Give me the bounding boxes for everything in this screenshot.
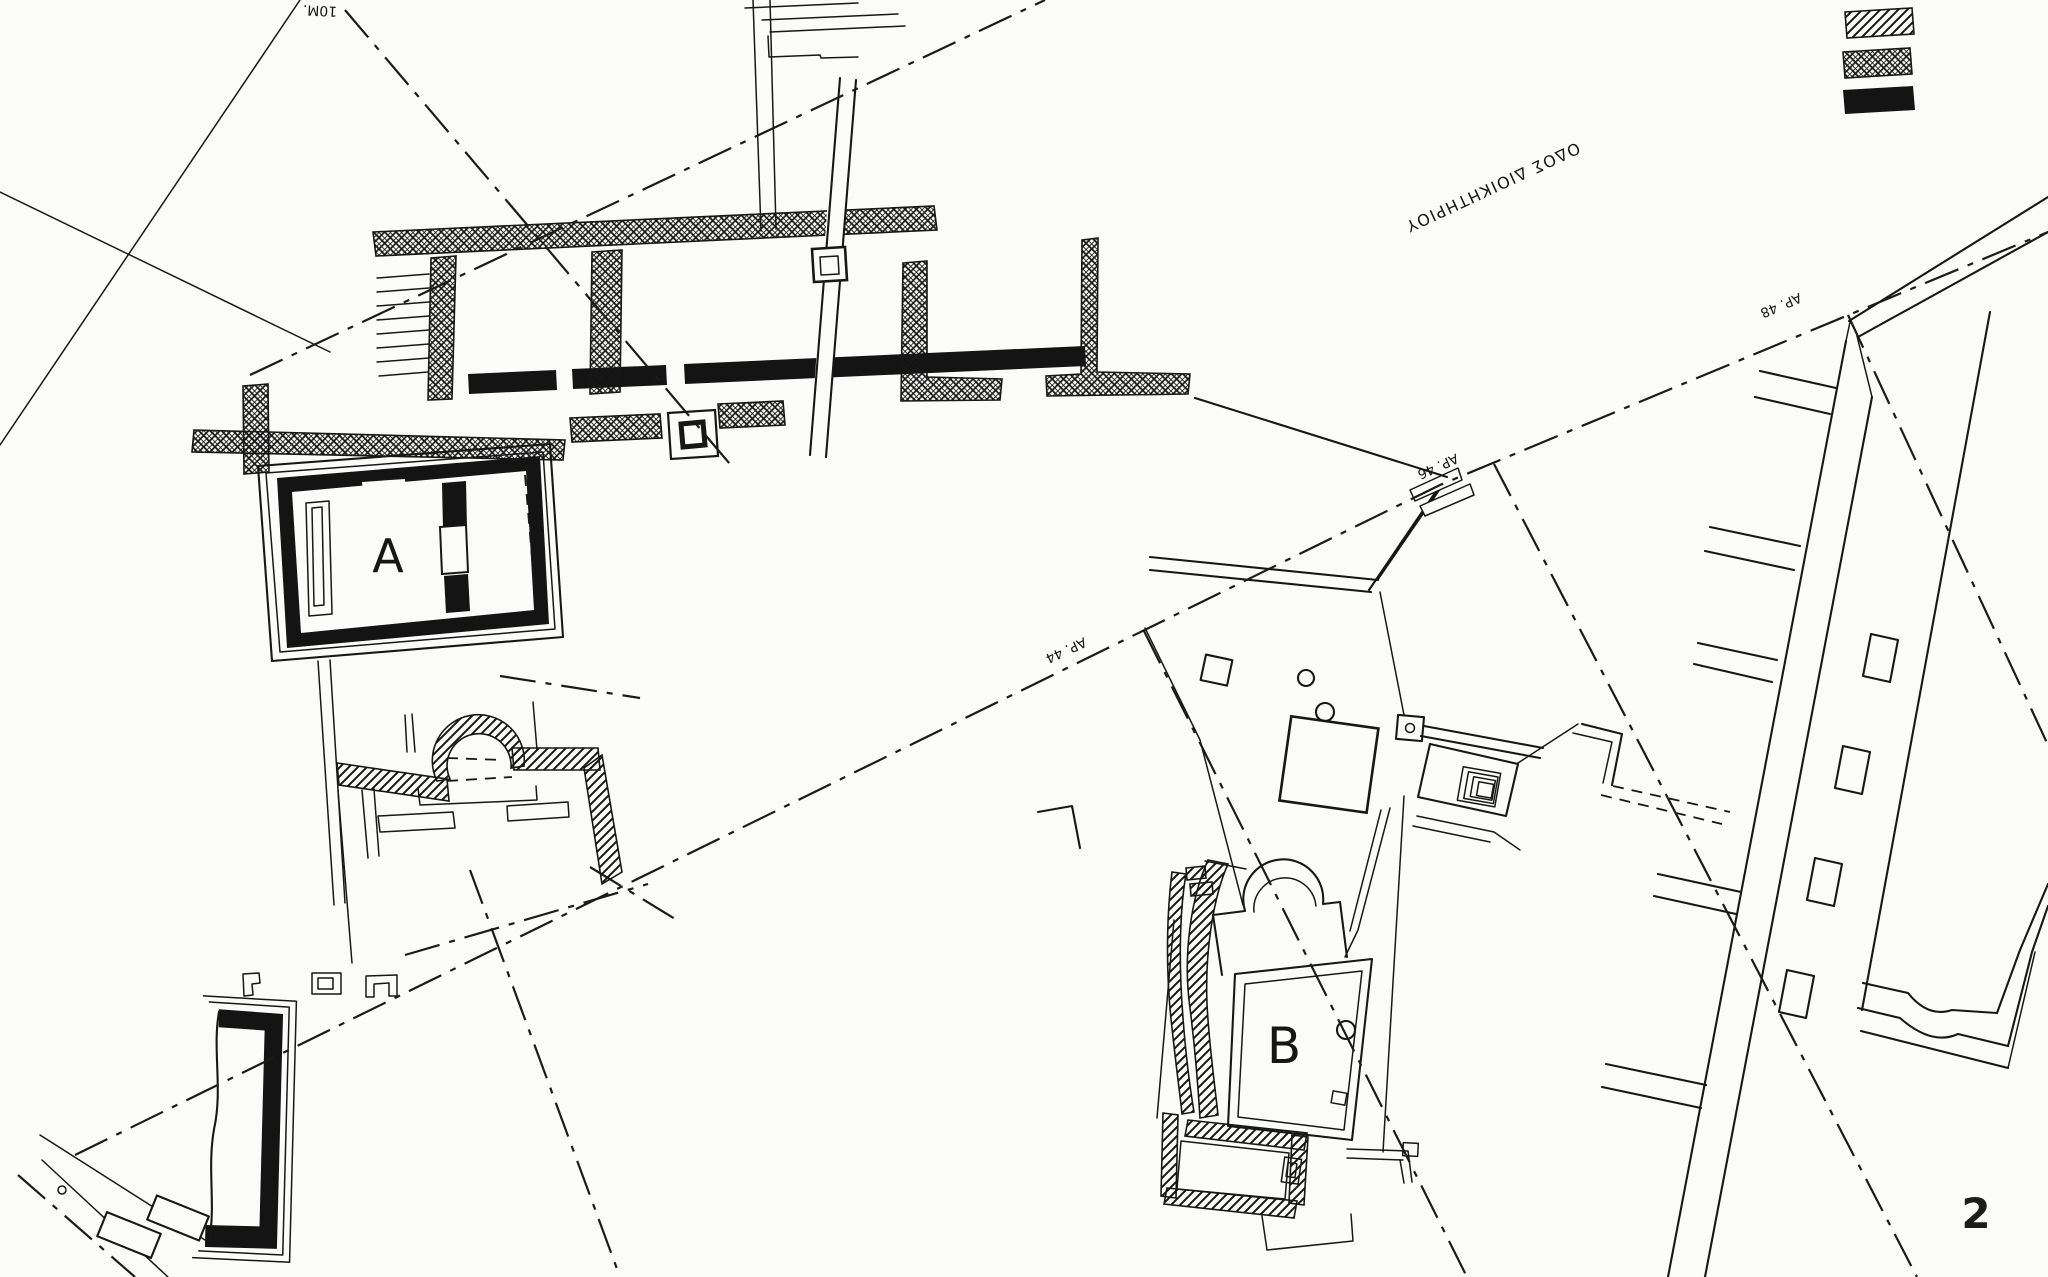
wall-stub xyxy=(718,401,785,428)
room-divider-wall xyxy=(590,250,622,394)
hatched-step xyxy=(1186,866,1206,880)
partition-wall xyxy=(444,574,470,613)
legend-solid-black-swatch xyxy=(1843,86,1915,114)
channel-box xyxy=(812,247,847,282)
doorway-block xyxy=(440,525,468,574)
figure-number: 2 xyxy=(1961,1189,1990,1238)
late-wall-black-strip xyxy=(468,370,557,394)
wall-stub xyxy=(570,414,662,442)
legend-cross-hatch-swatch xyxy=(1843,48,1912,78)
hatched-step xyxy=(1190,882,1213,896)
building-a-label: A xyxy=(372,529,404,583)
legend-diagonal-hatch-swatch xyxy=(1845,8,1914,38)
hatched-west-wall xyxy=(428,256,456,400)
hatched-room-wall xyxy=(1289,1135,1308,1205)
hatched-wall-bar xyxy=(243,384,269,474)
legend xyxy=(1843,8,1915,114)
partition-wall xyxy=(442,481,467,530)
site-plan-svg: A B 2 10M. ΟΔΟΣ ΔΙΟΙΚΗΤΗΡΙΟΥ ΑΡ. 44 ΑΡ. … xyxy=(0,0,2048,1277)
site-plan-figure: A B 2 10M. ΟΔΟΣ ΔΙΟΙΚΗΤΗΡΙΟΥ ΑΡ. 44 ΑΡ. … xyxy=(0,0,2048,1277)
hatched-room-wall xyxy=(1161,1113,1178,1198)
building-b-label: B xyxy=(1267,1017,1301,1075)
well-square-inner xyxy=(681,422,705,447)
scale-label: 10M. xyxy=(302,1,337,19)
